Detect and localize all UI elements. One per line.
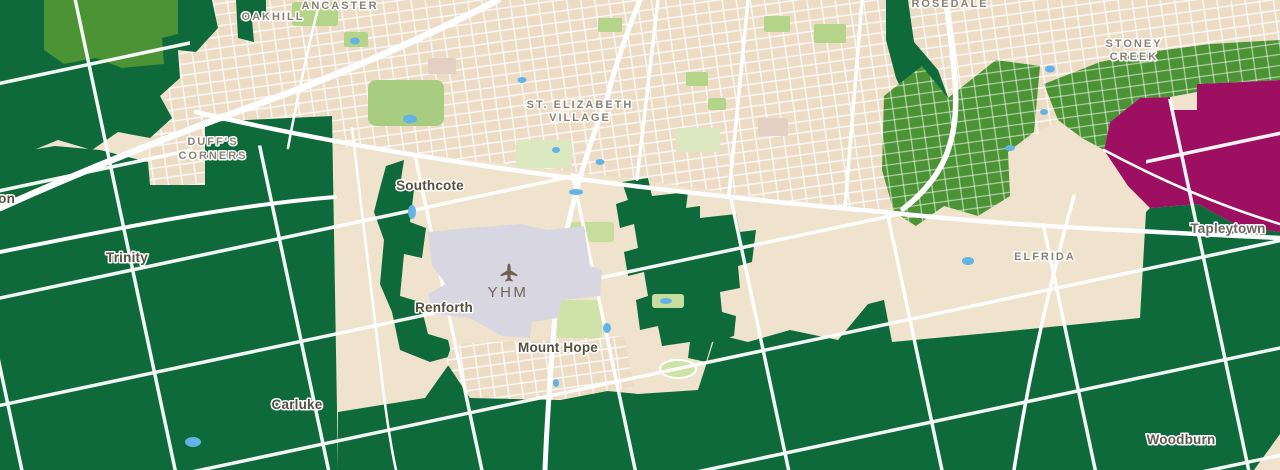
pond [350, 38, 360, 45]
pond [518, 77, 527, 83]
building-area [428, 58, 456, 74]
label-stoney-creek-2: CREEK [1110, 51, 1159, 63]
label-renforth: Renforth [415, 300, 473, 315]
park [708, 98, 726, 110]
lake [185, 437, 201, 447]
label-elfrida: ELFRIDA [1014, 251, 1076, 263]
pond [1045, 66, 1055, 73]
field [676, 128, 720, 152]
pond [569, 189, 583, 195]
label-tapleytown: Tapleytown [1190, 221, 1265, 236]
pond [603, 323, 611, 333]
label-woodburn: Woodburn [1147, 432, 1216, 447]
label-st-elizabeth-1: ST. ELIZABETH [527, 99, 634, 111]
label-mount-hope: Mount Hope [518, 340, 598, 355]
pond [596, 159, 605, 165]
region-overlay-medium-green[interactable] [44, 0, 178, 68]
label-southcote: Southcote [396, 178, 464, 193]
park [598, 18, 622, 32]
airport-code-label: YHM [488, 284, 529, 301]
building-area [758, 118, 788, 136]
label-left-edge-partial: rton [0, 191, 15, 206]
field [556, 300, 602, 338]
park [814, 24, 846, 43]
pond [552, 147, 560, 153]
pond [1040, 109, 1048, 115]
map-canvas[interactable]: YHM OAKHILL ANCASTER DUFF'S CORNERS ST. … [0, 0, 1280, 470]
pond [660, 298, 672, 304]
label-st-elizabeth-2: VILLAGE [549, 112, 611, 124]
pond [553, 379, 559, 387]
park [686, 72, 708, 86]
label-oakhill: OAKHILL [242, 11, 305, 23]
label-carluke: Carluke [272, 397, 323, 412]
label-duffs-corners-1: DUFF'S [187, 136, 238, 148]
label-stoney-creek-1: STONEY [1105, 38, 1162, 50]
label-ancaster: ANCASTER [301, 0, 378, 12]
park [764, 16, 790, 32]
label-duffs-corners-2: CORNERS [178, 150, 247, 162]
field [516, 140, 572, 168]
pond [408, 205, 416, 219]
label-trinity: Trinity [106, 250, 148, 265]
map-svg[interactable]: YHM OAKHILL ANCASTER DUFF'S CORNERS ST. … [0, 0, 1280, 470]
pond [962, 257, 974, 265]
pond [403, 115, 417, 124]
label-rosedale: ROSEDALE [911, 0, 988, 10]
pond [1005, 145, 1015, 151]
